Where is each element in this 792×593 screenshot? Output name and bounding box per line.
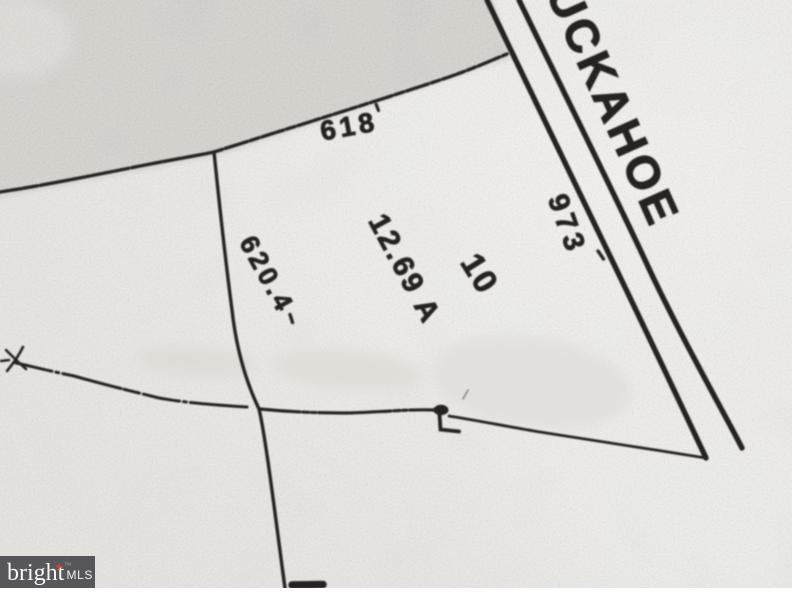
svg-text:bright: bright (7, 560, 65, 586)
svg-text:MLS: MLS (67, 568, 93, 582)
svg-text:TM: TM (65, 562, 72, 567)
